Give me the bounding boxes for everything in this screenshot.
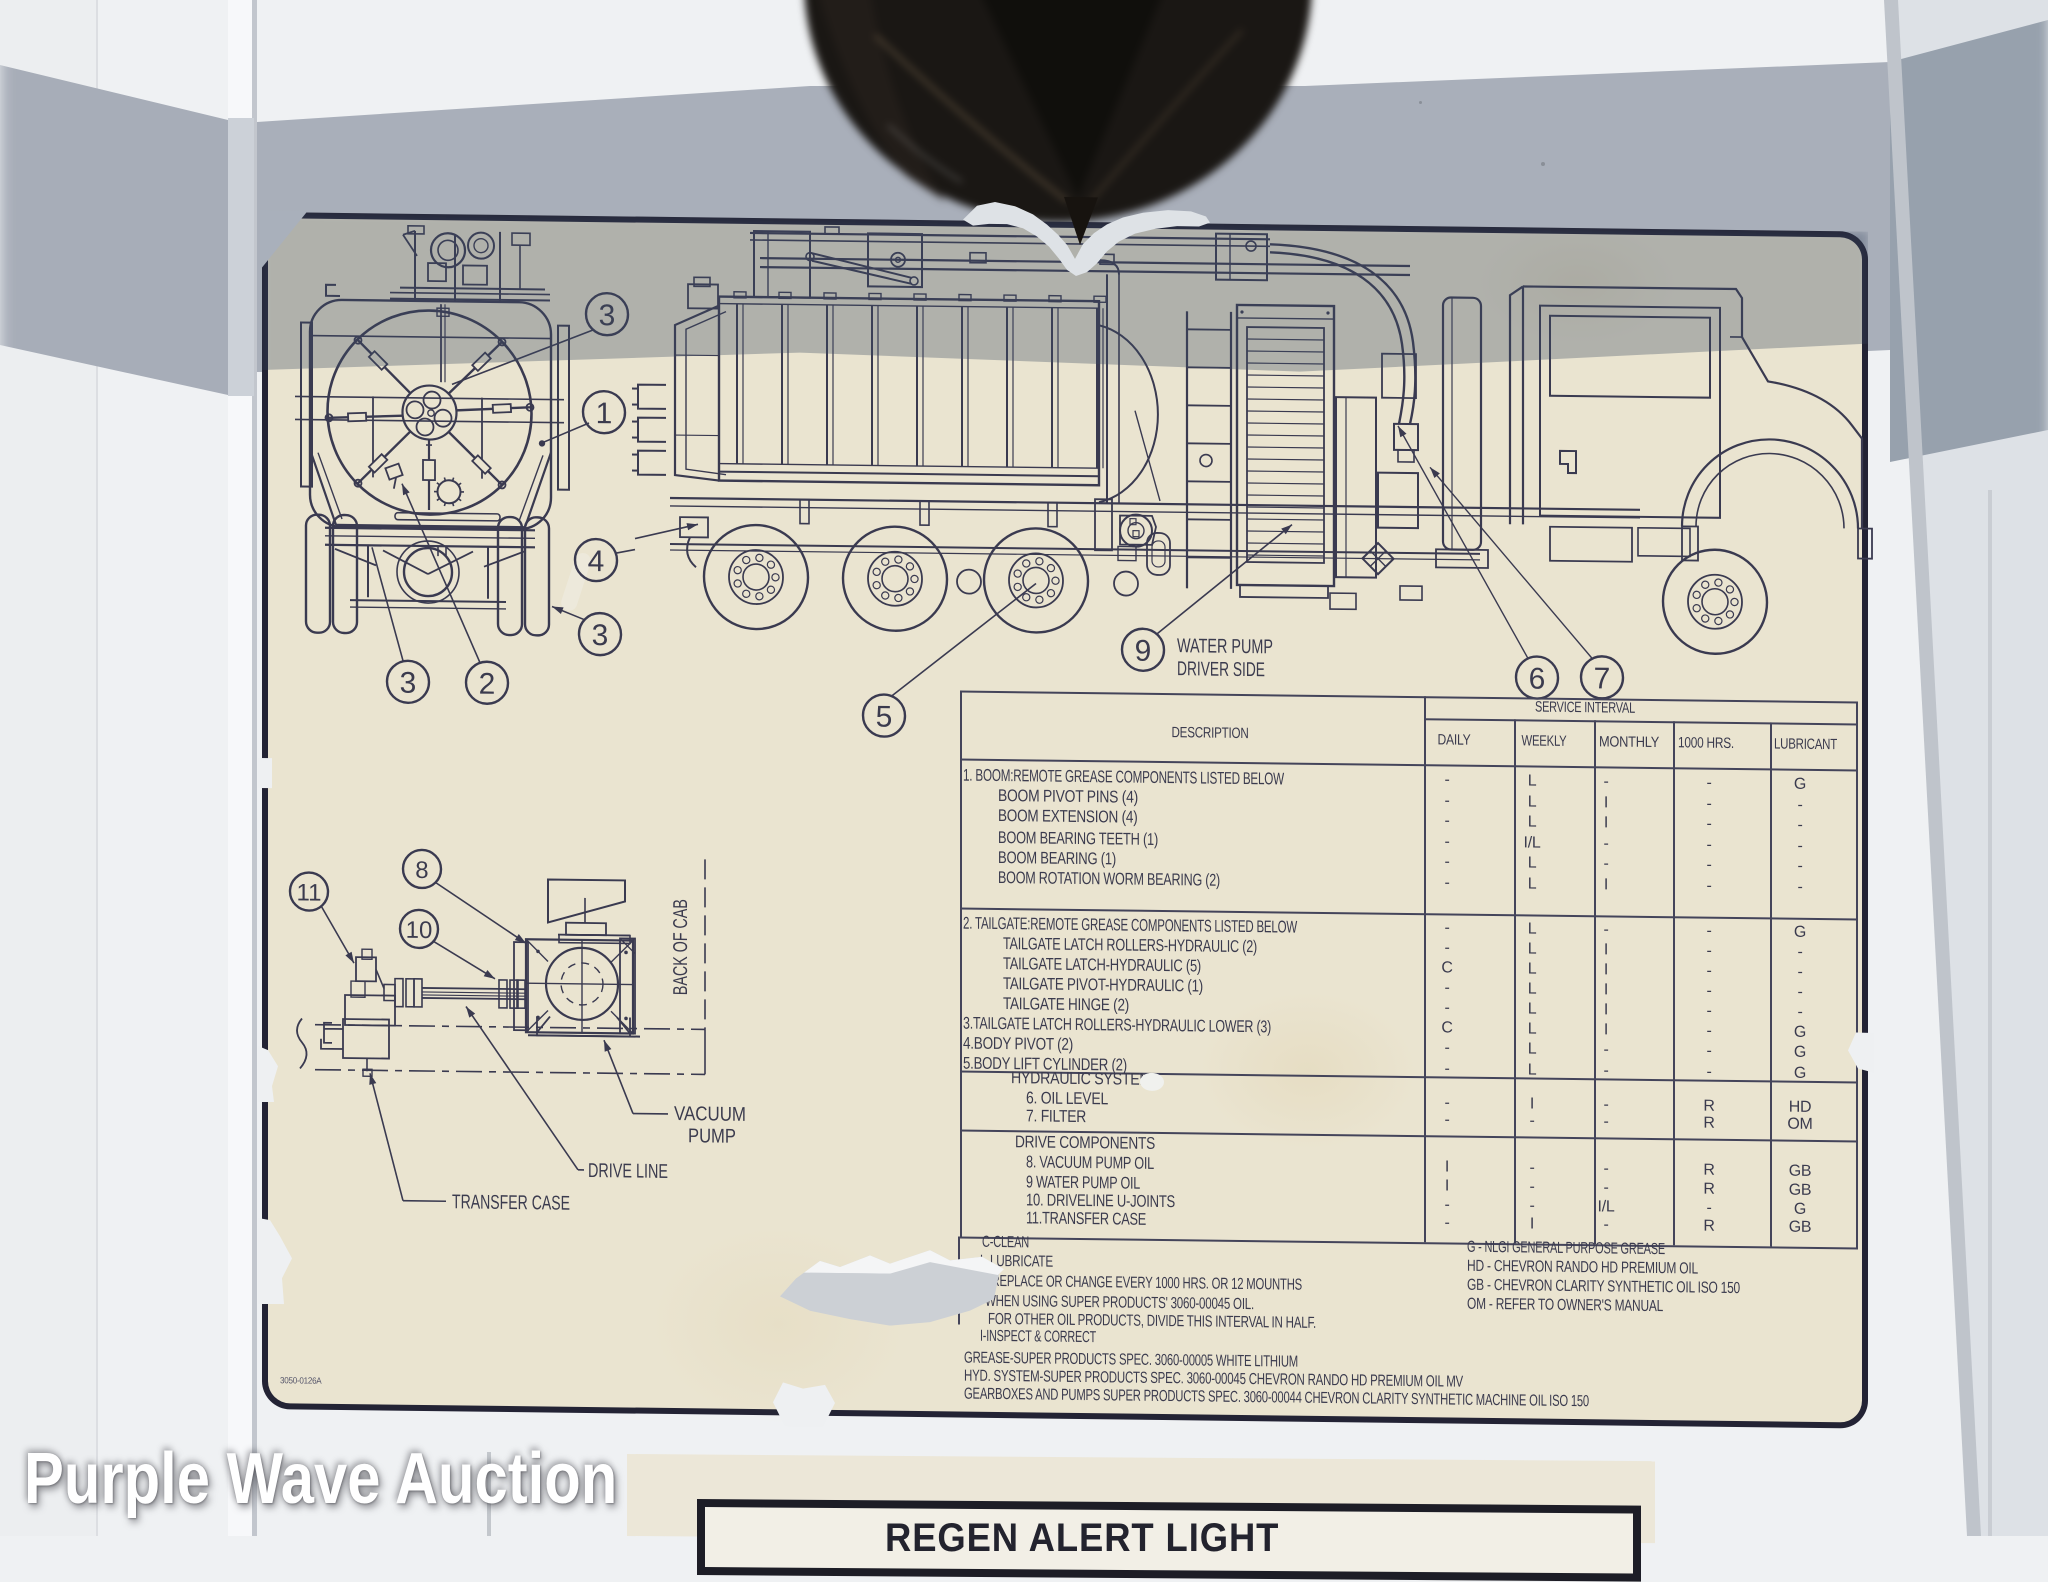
svg-text:WATER PUMP: WATER PUMP bbox=[1177, 635, 1273, 658]
svg-text:3: 3 bbox=[400, 667, 417, 700]
svg-text:6: 6 bbox=[1529, 662, 1546, 695]
svg-text:PUMP: PUMP bbox=[688, 1125, 736, 1148]
svg-text:BACK OF CAB: BACK OF CAB bbox=[670, 899, 692, 995]
svg-text:7: 7 bbox=[1594, 662, 1611, 695]
svg-text:VACUUM: VACUUM bbox=[674, 1103, 746, 1126]
svg-text:2: 2 bbox=[479, 668, 496, 701]
svg-text:3: 3 bbox=[592, 619, 609, 652]
svg-text:DRIVER SIDE: DRIVER SIDE bbox=[1177, 658, 1265, 681]
svg-text:1: 1 bbox=[596, 397, 613, 430]
svg-text:TRANSFER CASE: TRANSFER CASE bbox=[452, 1191, 570, 1214]
svg-text:8: 8 bbox=[415, 857, 428, 884]
svg-text:11: 11 bbox=[297, 879, 322, 906]
svg-text:10: 10 bbox=[406, 917, 433, 944]
svg-text:4: 4 bbox=[588, 545, 605, 578]
svg-text:9: 9 bbox=[1135, 635, 1152, 668]
svg-text:5: 5 bbox=[876, 700, 893, 733]
svg-text:DRIVE LINE: DRIVE LINE bbox=[588, 1160, 668, 1183]
